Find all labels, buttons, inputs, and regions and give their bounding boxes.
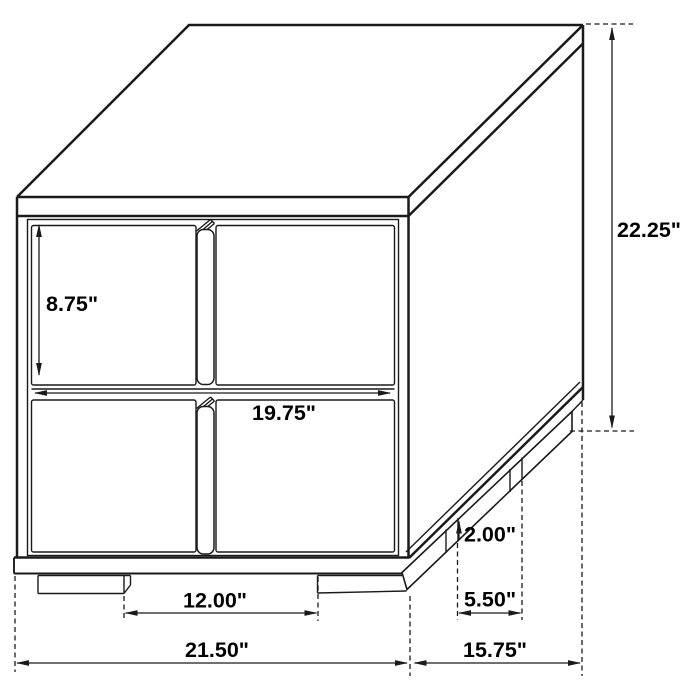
dim-label-drawer-height: 8.75"	[46, 292, 98, 316]
cabinet-outer-frame	[14, 25, 583, 558]
drawer-panel-upper-right	[216, 226, 395, 386]
dim-label-leg-height: 2.00"	[464, 523, 516, 547]
plinth-side	[402, 412, 572, 590]
front-leg-right	[318, 576, 407, 594]
handle-bar-lower	[197, 407, 214, 555]
drawer-handles	[197, 220, 215, 555]
nightstand-dimension-diagram: 8.75" 19.75" 22.25" 2.00" 5.50" 12.00" 2…	[0, 0, 700, 700]
drawer-handle-upper	[197, 220, 215, 385]
extension-lines	[15, 24, 634, 676]
top-slab	[17, 44, 583, 217]
drawer-handle-lower	[197, 397, 215, 554]
dim-label-overall-width: 21.50"	[185, 638, 249, 662]
dim-label-overall-depth: 15.75"	[463, 638, 527, 662]
front-leg-left	[38, 576, 131, 594]
drawer-panel-lower-left	[32, 400, 197, 552]
handle-bar-upper	[197, 230, 214, 385]
dim-label-front-leg-spacing: 12.00"	[183, 589, 247, 613]
dimension-diagram-page: 8.75" 19.75" 22.25" 2.00" 5.50" 12.00" 2…	[0, 0, 700, 700]
nightstand-drawing	[14, 25, 583, 594]
dim-label-side-leg-spacing: 5.50"	[464, 588, 516, 612]
plinth-front	[14, 558, 404, 574]
top-face	[17, 25, 583, 197]
dim-label-drawer-width: 19.75"	[252, 401, 316, 425]
dim-label-overall-height: 22.25"	[617, 218, 681, 242]
